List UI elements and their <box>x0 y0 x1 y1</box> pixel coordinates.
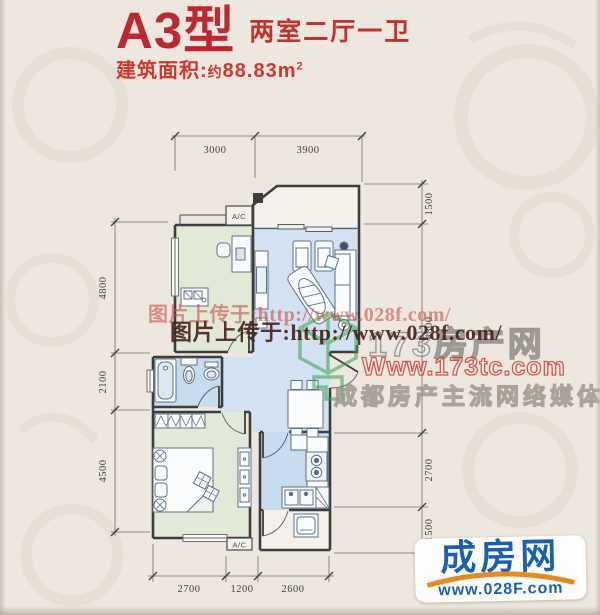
area-line: 建筑面积:约88.83m2 <box>116 54 411 83</box>
stove <box>306 452 327 481</box>
area-value: 88.83m <box>223 60 297 82</box>
scanned-floorplan-page: A/C A/C 3000 3900 4800 2100 4500 <box>0 0 600 615</box>
dim-right-2: 2700 <box>424 459 435 482</box>
structural-column <box>253 193 263 203</box>
scan-edge-left <box>0 0 6 615</box>
double-sink <box>282 487 316 508</box>
dim-bottom-0: 2700 <box>178 584 201 595</box>
ac-top-label: A/C <box>232 212 246 221</box>
chengfangwang-url: www.028F.com <box>415 579 586 601</box>
dim-right-0: 1500 <box>424 193 435 216</box>
flower-lamp <box>154 499 166 511</box>
chengfangwang-logo-card: 成房网 www.028F.com <box>414 535 586 603</box>
logo-173-slogan: 成都房产主流网络媒体 <box>334 377 600 411</box>
area-approx: 约 <box>208 64 223 80</box>
dim-left-1: 2100 <box>98 371 109 394</box>
dim-top: 3000 3900 <box>171 132 366 182</box>
study-window <box>172 238 179 296</box>
bed <box>153 448 219 512</box>
dim-left-2: 4500 <box>98 460 109 483</box>
dresser <box>238 448 251 507</box>
bathroom-window <box>147 370 154 392</box>
header: A3型两室二厅一卫 建筑面积:约88.83m2 <box>116 2 411 83</box>
flower-lamp <box>154 450 166 462</box>
dim-top-0: 3000 <box>204 145 227 156</box>
area-label: 建筑面积: <box>116 60 208 82</box>
ac-bottom-label: A/C <box>232 541 246 550</box>
dim-bottom: 2700 1200 2600 <box>148 544 334 595</box>
bedroom-window <box>183 535 227 542</box>
rooms-label: 两室二厅一卫 <box>249 18 411 46</box>
dim-left-0: 4800 <box>98 277 109 300</box>
watermark-upload-dark: 图片上传于:http://www.028f.com/ <box>170 315 502 347</box>
entry-cabinet <box>294 514 318 537</box>
area-sup: 2 <box>297 60 304 72</box>
plant <box>340 242 348 250</box>
dim-bottom-1: 1200 <box>231 584 254 595</box>
unit-type-title: A3型 <box>116 2 235 59</box>
scan-edge-bottom <box>0 606 600 615</box>
corner-shelf <box>316 487 329 508</box>
dim-bottom-2: 2600 <box>282 584 305 595</box>
dim-top-1: 3900 <box>297 145 320 156</box>
scan-edge-right <box>595 0 600 615</box>
wardrobe <box>155 414 205 428</box>
